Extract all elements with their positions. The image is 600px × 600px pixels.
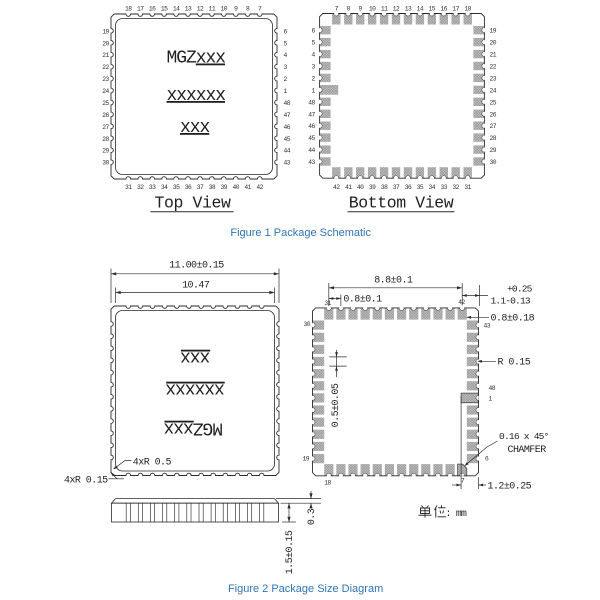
svg-text:42: 42 (333, 184, 340, 191)
svg-text:33: 33 (149, 184, 156, 191)
svg-text:15: 15 (161, 6, 168, 13)
svg-text:10.47: 10.47 (182, 280, 210, 291)
svg-text:CHAMFER: CHAMFER (508, 445, 547, 456)
svg-text:14: 14 (173, 6, 180, 13)
svg-text:11: 11 (381, 6, 388, 13)
svg-text:32: 32 (452, 184, 459, 191)
svg-text:xxxxxx: xxxxxx (167, 86, 226, 106)
svg-text:25: 25 (490, 99, 497, 106)
svg-text:19: 19 (490, 28, 497, 35)
svg-text:10: 10 (221, 6, 228, 13)
svg-text:16: 16 (149, 6, 156, 13)
svg-text:28: 28 (490, 135, 497, 142)
svg-text:MGZxxx: MGZxxx (167, 49, 226, 69)
svg-text:31: 31 (125, 184, 132, 191)
svg-text:+0.25: +0.25 (507, 284, 533, 295)
svg-text:41: 41 (244, 184, 251, 191)
svg-text:43: 43 (284, 160, 291, 167)
svg-text:48: 48 (284, 100, 291, 107)
svg-text:45: 45 (308, 135, 315, 142)
svg-text:46: 46 (284, 124, 291, 131)
svg-text:18: 18 (125, 6, 132, 13)
svg-text:22: 22 (102, 64, 109, 71)
svg-text:24: 24 (102, 88, 109, 95)
svg-text:0.3: 0.3 (307, 508, 318, 525)
svg-text:47: 47 (308, 111, 315, 118)
svg-text:19: 19 (102, 28, 109, 35)
svg-text:26: 26 (490, 111, 497, 118)
svg-text:13: 13 (185, 6, 192, 13)
svg-text:10: 10 (369, 6, 376, 13)
svg-text:4xR 0.5: 4xR 0.5 (133, 457, 172, 468)
svg-text:0.5±0.05: 0.5±0.05 (331, 383, 342, 427)
svg-text:36: 36 (405, 184, 412, 191)
svg-text:18: 18 (464, 6, 471, 13)
svg-text:4xR 0.15: 4xR 0.15 (64, 476, 108, 487)
svg-text:40: 40 (233, 184, 240, 191)
svg-text:40: 40 (357, 184, 364, 191)
svg-text:48: 48 (489, 385, 496, 392)
svg-text:22: 22 (490, 64, 497, 71)
svg-text:13: 13 (405, 6, 412, 13)
svg-text:23: 23 (490, 75, 497, 82)
svg-text:45: 45 (284, 136, 291, 143)
svg-text:25: 25 (102, 100, 109, 107)
svg-text:44: 44 (284, 148, 291, 155)
svg-text:29: 29 (102, 148, 109, 155)
svg-text:30: 30 (303, 321, 310, 328)
svg-text:30: 30 (490, 159, 497, 166)
svg-text:18: 18 (324, 480, 331, 487)
svg-text:20: 20 (102, 40, 109, 47)
svg-text:8.8±0.1: 8.8±0.1 (374, 276, 413, 287)
svg-text:31: 31 (324, 300, 331, 307)
svg-text:17: 17 (137, 6, 144, 13)
svg-text:39: 39 (221, 184, 228, 191)
svg-text:Bottom View: Bottom View (349, 194, 454, 213)
svg-text:36: 36 (185, 184, 192, 191)
svg-text:23: 23 (102, 76, 109, 83)
svg-text:38: 38 (381, 184, 388, 191)
svg-text:33: 33 (441, 184, 448, 191)
svg-text:34: 34 (429, 184, 436, 191)
svg-text:27: 27 (102, 124, 109, 131)
svg-text:0.8±0.18: 0.8±0.18 (491, 314, 535, 325)
svg-text:21: 21 (102, 52, 109, 59)
svg-text:38: 38 (209, 184, 216, 191)
svg-text:xxx: xxx (180, 118, 210, 138)
svg-text:35: 35 (173, 184, 180, 191)
svg-text:19: 19 (302, 455, 309, 462)
svg-text:0.8±0.1: 0.8±0.1 (343, 295, 382, 306)
svg-text:24: 24 (490, 87, 497, 94)
svg-text:Figure 1 Package Schematic: Figure 1 Package Schematic (230, 227, 371, 239)
svg-text:MGZxxx: MGZxxx (164, 418, 223, 438)
svg-text:47: 47 (284, 112, 291, 119)
svg-text:0.16 x 45°: 0.16 x 45° (499, 431, 549, 442)
svg-text:27: 27 (490, 123, 497, 130)
svg-text:48: 48 (308, 99, 315, 106)
svg-text:14: 14 (417, 6, 424, 13)
svg-text:1.2±0.25: 1.2±0.25 (488, 482, 532, 493)
svg-text:12: 12 (197, 6, 204, 13)
svg-text:Figure 2 Package Size Diagram: Figure 2 Package Size Diagram (228, 583, 383, 595)
svg-text:32: 32 (137, 184, 144, 191)
svg-text:39: 39 (369, 184, 376, 191)
svg-text:30: 30 (102, 160, 109, 167)
svg-text:11.00±0.15: 11.00±0.15 (169, 261, 224, 272)
svg-text:29: 29 (490, 147, 497, 154)
svg-text:15: 15 (429, 6, 436, 13)
svg-text:43: 43 (484, 322, 491, 329)
svg-text:42: 42 (458, 299, 465, 306)
svg-text:12: 12 (393, 6, 400, 13)
svg-text:21: 21 (490, 52, 497, 59)
svg-text:R 0.15: R 0.15 (498, 358, 531, 369)
svg-text:44: 44 (308, 147, 315, 154)
svg-text:34: 34 (161, 184, 168, 191)
svg-text:: mm: : mm (446, 508, 468, 519)
svg-text:16: 16 (441, 6, 448, 13)
svg-text:Top View: Top View (154, 194, 231, 213)
svg-text:41: 41 (345, 184, 352, 191)
svg-text:37: 37 (197, 184, 204, 191)
svg-text:11: 11 (209, 6, 216, 13)
svg-text:35: 35 (417, 184, 424, 191)
svg-text:xxx: xxx (181, 347, 211, 367)
svg-text:20: 20 (490, 40, 497, 47)
svg-text:42: 42 (256, 184, 263, 191)
svg-text:xxxxxx: xxxxxx (166, 379, 225, 399)
svg-text:31: 31 (464, 184, 471, 191)
svg-text:17: 17 (452, 6, 459, 13)
svg-text:37: 37 (393, 184, 400, 191)
svg-text:1.5±0.15: 1.5±0.15 (285, 530, 296, 574)
svg-text:46: 46 (308, 123, 315, 130)
svg-text:28: 28 (102, 136, 109, 143)
svg-text:1.1-0.13: 1.1-0.13 (491, 296, 531, 307)
svg-text:43: 43 (308, 159, 315, 166)
svg-text:26: 26 (102, 112, 109, 119)
